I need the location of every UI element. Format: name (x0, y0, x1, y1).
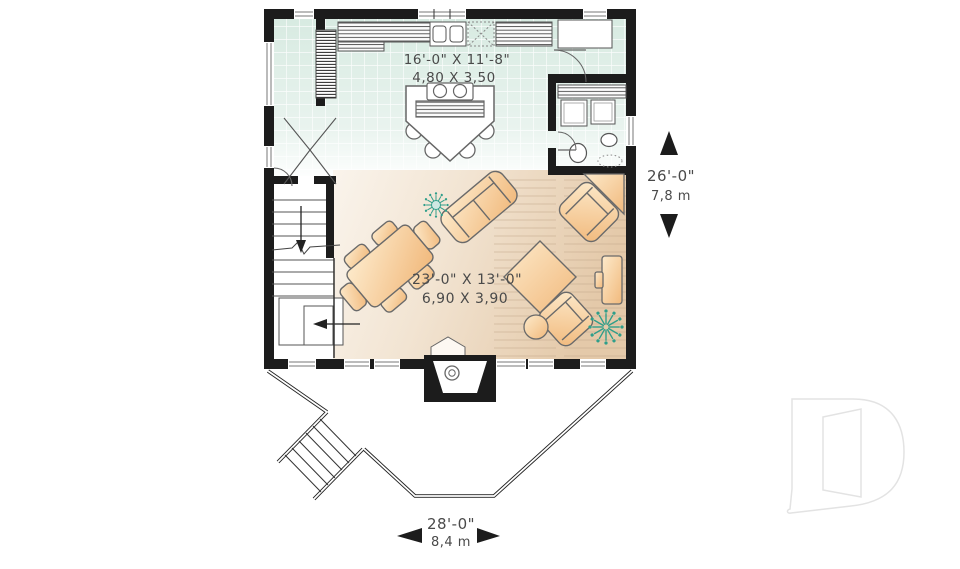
vestibule-opening (298, 176, 314, 184)
window (294, 9, 314, 19)
arrow-right-icon (477, 528, 500, 543)
depth-imperial: 26'-0" (647, 167, 695, 185)
window (528, 359, 554, 369)
laundry-counter (558, 85, 626, 98)
window (626, 116, 636, 146)
window (580, 359, 606, 369)
bathroom-sink (601, 134, 617, 147)
fireplace (424, 355, 496, 402)
island-bar-counter (416, 101, 484, 117)
kitchen-dim-metric: 4,80 X 3,50 (412, 70, 495, 86)
living-dim-metric: 6,90 X 3,90 (422, 291, 508, 307)
dryer (591, 100, 615, 124)
kitchen-counter (496, 22, 552, 46)
window (496, 359, 526, 369)
washer (561, 100, 587, 126)
width-dimension: 28'-0" 8,4 m (397, 515, 500, 550)
floor-plan-drawing: 16'-0" X 11'-8" 4,80 X 3,50 23'-0" X 13'… (0, 0, 960, 569)
window (264, 42, 274, 106)
kitchen-counter (338, 22, 430, 42)
arrow-up-icon (660, 131, 678, 155)
arrow-down-icon (660, 214, 678, 238)
pantry-shelves (316, 30, 336, 98)
refrigerator (558, 20, 612, 48)
window (264, 146, 274, 168)
depth-metric: 7,8 m (651, 189, 691, 204)
toilet (570, 144, 587, 163)
kitchen-sink (430, 22, 466, 46)
deck-stairs (285, 419, 356, 492)
floor-plan-page: 16'-0" X 11'-8" 4,80 X 3,50 23'-0" X 13'… (0, 0, 960, 569)
window (374, 359, 400, 369)
arrow-left-icon (397, 528, 422, 543)
d-logo (787, 399, 904, 513)
window (583, 9, 607, 19)
window (418, 9, 466, 19)
width-imperial: 28'-0" (427, 515, 475, 533)
window (344, 359, 370, 369)
living-dim-imperial: 23'-0" X 13'-0" (412, 272, 522, 288)
kitchen-counter (338, 42, 384, 51)
window (288, 359, 316, 369)
depth-dimension: 26'-0" 7,8 m (647, 131, 695, 238)
side-table (524, 315, 548, 339)
kitchen-dim-imperial: 16'-0" X 11'-8" (404, 52, 510, 68)
width-metric: 8,4 m (431, 535, 471, 550)
